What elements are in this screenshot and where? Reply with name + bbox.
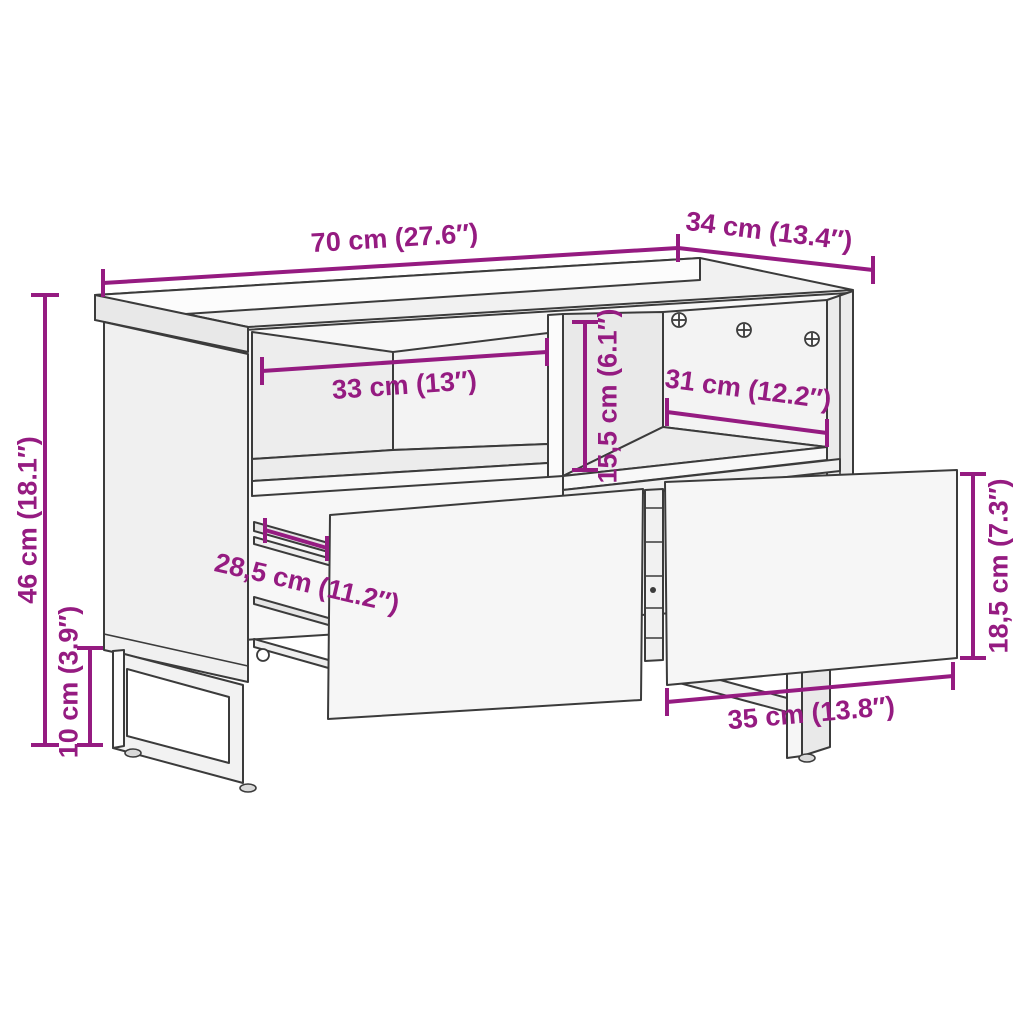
leg-foot <box>125 749 141 757</box>
dimension-drawer-front-height: 18,5 cm (7.3″) <box>960 474 1013 658</box>
cabinet-drawing: 70 cm (27.6″) 34 cm (13.4″) 46 cm (18.1″… <box>0 0 1024 1024</box>
dimension-diagram: 70 cm (27.6″) 34 cm (13.4″) 46 cm (18.1″… <box>0 0 1024 1024</box>
dimension-label: 46 cm (18.1″) <box>12 436 42 604</box>
dimension-label: 18,5 cm (7.3″) <box>983 478 1013 653</box>
drawer-roller <box>257 649 269 661</box>
screw-icon <box>737 323 751 337</box>
dimension-leg-height: 10 cm (3.9″) <box>53 606 103 759</box>
center-post <box>645 489 663 661</box>
dimension-label: 34 cm (13.4″) <box>684 206 854 256</box>
left-side-panel <box>104 322 248 682</box>
dimension-label: 10 cm (3.9″) <box>53 606 83 759</box>
dimension-label: 15,5 cm (6.1″) <box>592 308 622 483</box>
screw-icon <box>805 332 819 346</box>
left-leg-front-edge <box>113 650 124 748</box>
rail-screw-dot <box>650 587 656 593</box>
leg-foot <box>799 754 815 762</box>
center-divider-front-edge <box>548 314 563 477</box>
dimension-label: 70 cm (27.6″) <box>310 218 479 258</box>
dimension-total-height: 46 cm (18.1″) <box>12 295 59 745</box>
leg-foot <box>240 784 256 792</box>
right-drawer-front-panel <box>665 470 957 685</box>
screw-icon <box>672 313 686 327</box>
